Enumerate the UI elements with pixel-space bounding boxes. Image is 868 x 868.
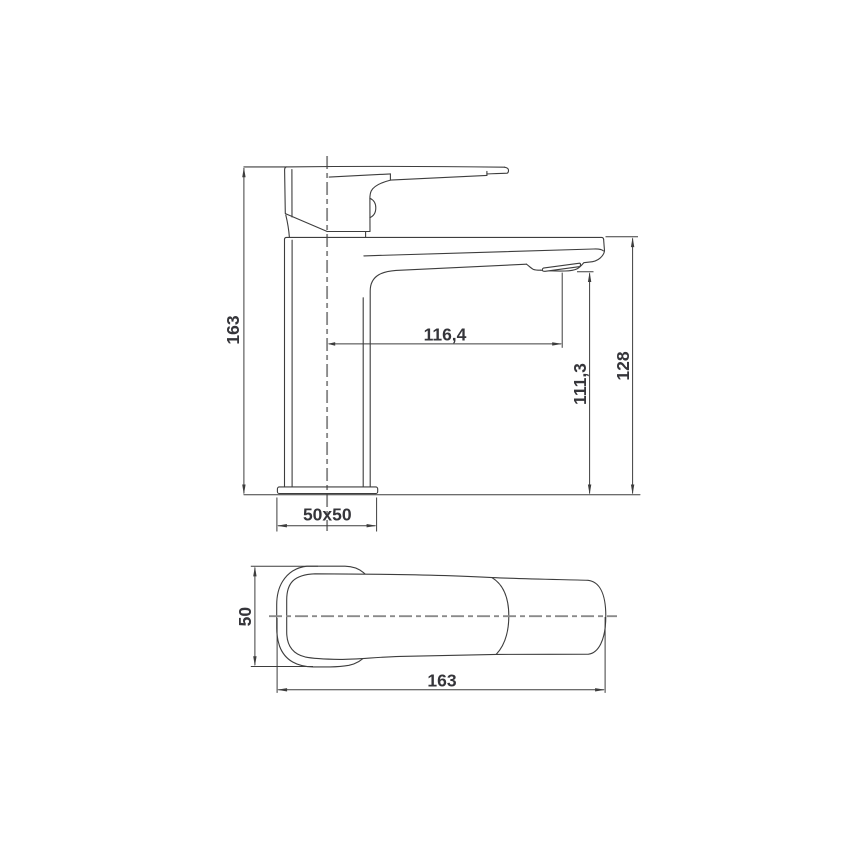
svg-text:163: 163: [223, 315, 243, 344]
svg-text:116,4: 116,4: [424, 325, 467, 345]
svg-text:111,3: 111,3: [570, 363, 590, 405]
svg-text:163: 163: [427, 670, 456, 690]
svg-text:50x50: 50x50: [303, 504, 352, 524]
svg-text:128: 128: [613, 351, 633, 380]
svg-text:50: 50: [235, 607, 255, 627]
